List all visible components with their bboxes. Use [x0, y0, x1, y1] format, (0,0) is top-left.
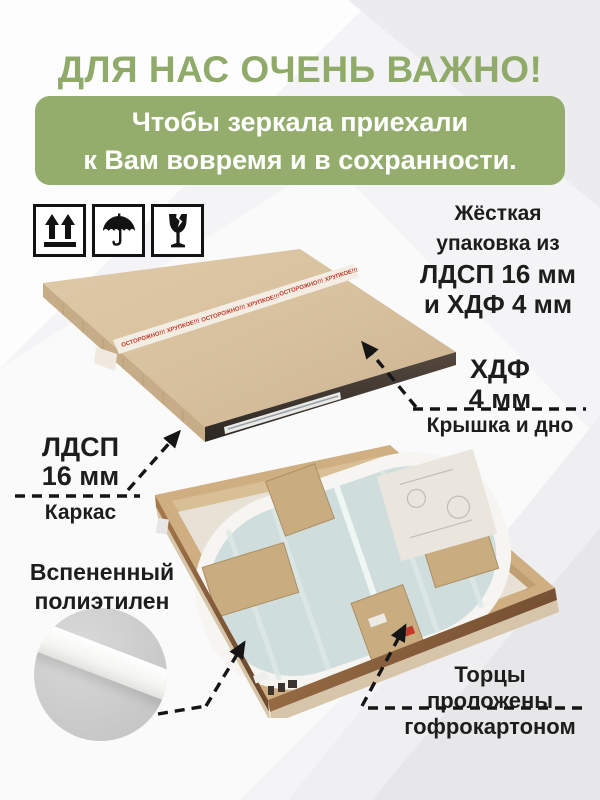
infographic-page: ДЛЯ НАС ОЧЕНЬ ВАЖНО! Чтобы зеркала приех… — [0, 0, 600, 800]
package-top-face — [43, 249, 456, 427]
foam-line-2: полиэтилен — [12, 587, 192, 616]
foam-label: Вспененный полиэтилен — [12, 558, 192, 616]
wine-glass-glyph — [158, 211, 198, 251]
keep-dry-umbrella-icon — [92, 204, 145, 257]
package-photo: ОСТОРОЖНО!!! ХРУПКОЕ!!! ОСТОРОЖНО!!! ХРУ… — [18, 228, 463, 453]
umbrella-glyph — [99, 211, 139, 251]
ldsp-label: ЛДСП 16 мм — [8, 433, 153, 491]
ldsp-line-2: 16 мм — [8, 462, 153, 491]
edges-line-2: проложены — [390, 688, 590, 714]
side-label — [156, 518, 169, 534]
fragile-glass-icon — [151, 204, 204, 257]
hdf-caption: Крышка и дно — [405, 414, 595, 438]
foam-detail-inset — [34, 608, 167, 741]
page-title: ДЛЯ НАС ОЧЕНЬ ВАЖНО! — [0, 49, 600, 91]
edges-line-1: Торцы — [390, 662, 590, 688]
hdf-line-1: ХДФ — [405, 354, 595, 384]
hdf-label: ХДФ 4 мм — [405, 354, 595, 414]
subtitle-banner: Чтобы зеркала приехали к Вам вовремя и в… — [35, 96, 565, 185]
banner-line-1: Чтобы зеркала приехали — [35, 103, 565, 141]
hdf-line-2: 4 мм — [405, 384, 595, 414]
foam-line-1: Вспененный — [12, 558, 192, 587]
banner-line-2: к Вам вовремя и в сохранности. — [35, 141, 565, 179]
edges-label: Торцы проложены гофрокартоном — [390, 662, 590, 740]
foam-tube — [34, 617, 167, 706]
rigid-line-4: и ХДФ 4 мм — [403, 289, 593, 319]
edges-line-3: гофрокартоном — [390, 714, 590, 740]
packaging-icons — [33, 204, 204, 257]
this-side-up-icon — [33, 204, 86, 257]
rigid-line-1: Жёсткая — [403, 199, 593, 229]
rigid-packaging-label: Жёсткая упаковка из ЛДСП 16 мм и ХДФ 4 м… — [403, 199, 593, 319]
ldsp-caption: Каркас — [8, 501, 153, 525]
rigid-line-2: упаковка из — [403, 229, 593, 259]
this-side-up-glyph — [40, 211, 80, 251]
ldsp-line-1: ЛДСП — [8, 433, 153, 462]
rigid-line-3: ЛДСП 16 мм — [403, 259, 593, 289]
